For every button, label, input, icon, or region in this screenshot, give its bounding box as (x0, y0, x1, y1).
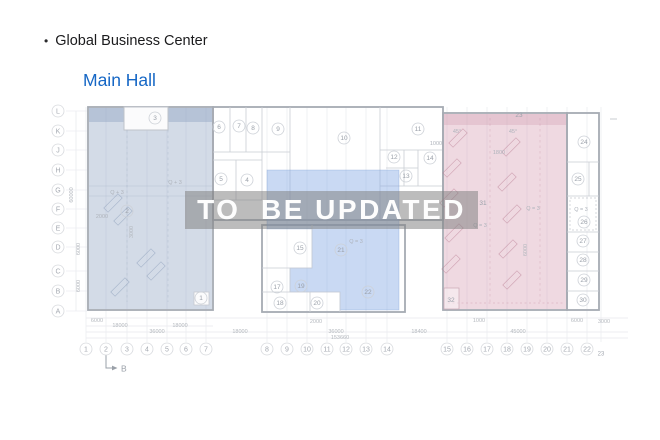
grid-letter: A (56, 308, 61, 315)
dimension-label-vertical: 3000 (129, 226, 135, 238)
plan-annotation: 2000 (96, 214, 108, 220)
room-number: 11 (415, 126, 422, 133)
room-number: 7 (237, 123, 241, 130)
grid-letter: L (56, 108, 60, 115)
dimension-label-vertical: 6000 (76, 243, 82, 255)
grid-number: 12 (342, 346, 350, 353)
plan-annotation: 1000 (430, 141, 442, 147)
grid-number: 16 (463, 346, 471, 353)
room-number: 30 (579, 297, 587, 304)
grid-number: 14 (383, 346, 391, 353)
room-number: 8 (251, 125, 255, 132)
room-number: 21 (337, 247, 345, 254)
grid-number: 15 (443, 346, 451, 353)
room-number: 31 (479, 200, 487, 207)
room-number: 26 (580, 219, 588, 226)
grid-number: 6 (184, 346, 188, 353)
room-number: 27 (579, 238, 587, 245)
dimension-label: 18400 (411, 329, 426, 335)
dimension-label: 45000 (510, 329, 525, 335)
watermark-text: TO BE UPDATED (197, 194, 466, 226)
plan-annotation: 45° (509, 129, 517, 135)
room-number: 29 (580, 277, 588, 284)
grid-number: 19 (523, 346, 531, 353)
plan-annotation: Q = 3 (574, 207, 588, 213)
dimension-label: 18000 (232, 329, 247, 335)
plan-annotation: Q + 3 (110, 190, 124, 196)
dimension-label: 18000 (172, 323, 187, 329)
slide-page: • Global Business Center Main Hall (0, 0, 660, 440)
room-number: 5 (219, 176, 223, 183)
grid-letter: B (56, 288, 61, 295)
room-number: 25 (574, 176, 582, 183)
room-number: 24 (580, 139, 588, 146)
room-number: 12 (390, 154, 398, 161)
room-number: 2 (125, 208, 129, 215)
grid-number: 9 (285, 346, 289, 353)
room-number: 10 (340, 135, 348, 142)
dimension-label: 1000 (473, 318, 485, 324)
dimension-label: 36000 (149, 329, 164, 335)
room-number: 4 (245, 177, 249, 184)
dimension-label-vertical: 6000 (523, 244, 529, 256)
dimension-label: 6000 (91, 318, 103, 324)
grid-number: 4 (145, 346, 149, 353)
grid-number: 22 (583, 346, 591, 353)
dimension-label-vertical: 6000 (76, 280, 82, 292)
plan-annotation: 1800 (493, 150, 505, 156)
grid-number: 5 (165, 346, 169, 353)
grid-number: 18 (503, 346, 511, 353)
grid-number: 13 (362, 346, 370, 353)
room-number: 6 (217, 124, 221, 131)
dimension-label: 6000 (571, 318, 583, 324)
grid-letter: H (55, 167, 60, 174)
dimension-label: 2000 (310, 319, 322, 325)
room-number: 18 (276, 300, 284, 307)
room-number: 32 (447, 297, 455, 304)
grid-number: 1 (84, 346, 88, 353)
grid-number: 8 (265, 346, 269, 353)
grid-number: 11 (323, 346, 330, 353)
dimension-label: 18000 (112, 323, 127, 329)
grid-number: 7 (204, 346, 208, 353)
room-number: 20 (313, 300, 321, 307)
room-number: 13 (402, 173, 410, 180)
grid-number: 23 (598, 351, 605, 357)
room-number: 3 (153, 115, 157, 122)
room-number: 19 (297, 283, 305, 290)
room-number: 22 (364, 289, 372, 296)
grid-letter: F (56, 206, 60, 213)
grid-number: 10 (303, 346, 311, 353)
grid-number: 21 (563, 346, 571, 353)
plan-annotation: Q = 3 (349, 239, 363, 245)
plan-annotation: Q + 3 (168, 180, 182, 186)
dimension-label-vertical: 60000 (69, 187, 75, 202)
grid-number: 3 (125, 346, 129, 353)
section-marker: B (106, 355, 127, 374)
room-number: 15 (296, 245, 304, 252)
room-number: 1 (199, 295, 203, 302)
grid-number: 2 (104, 346, 108, 353)
dimension-label: 153660 (331, 335, 349, 341)
room-number: 28 (579, 257, 587, 264)
section-marker-label: B (121, 364, 127, 374)
room-number: 17 (273, 284, 281, 291)
room-number: 14 (426, 155, 434, 162)
grid-letter: J (56, 147, 60, 154)
watermark-banner: TO BE UPDATED (185, 191, 478, 229)
grid-letter: D (55, 244, 60, 251)
room-number: 23 (515, 112, 523, 119)
plan-annotation: 45° (453, 129, 461, 135)
room-number: 9 (276, 126, 280, 133)
grid-letter: K (56, 128, 61, 135)
grid-letter: C (55, 268, 60, 275)
grid-letter: G (55, 187, 60, 194)
dimension-label: 3000 (598, 319, 610, 325)
grid-letter: E (56, 225, 61, 232)
grid-number: 17 (483, 346, 491, 353)
grid-number: 20 (543, 346, 551, 353)
plan-annotation: Q = 3 (526, 206, 540, 212)
